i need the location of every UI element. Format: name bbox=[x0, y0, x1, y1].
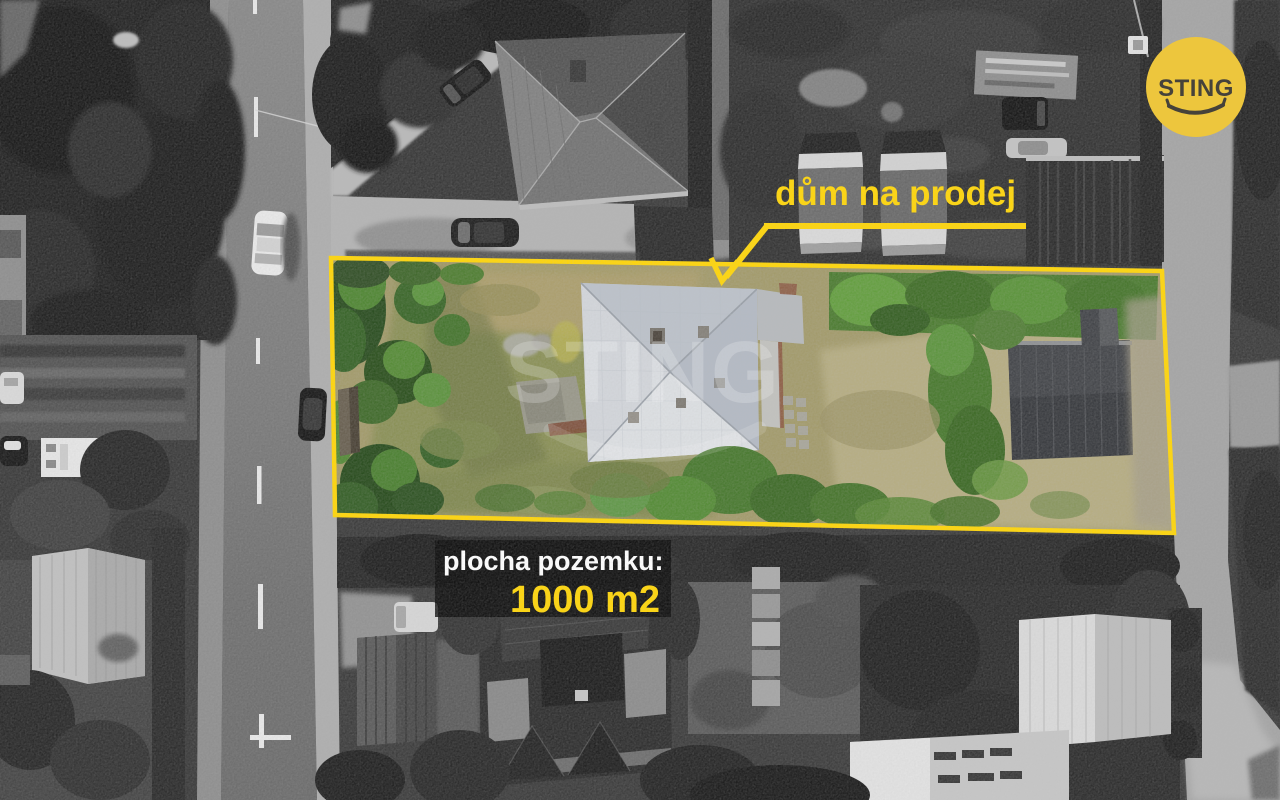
svg-text:STING: STING bbox=[1158, 75, 1234, 102]
